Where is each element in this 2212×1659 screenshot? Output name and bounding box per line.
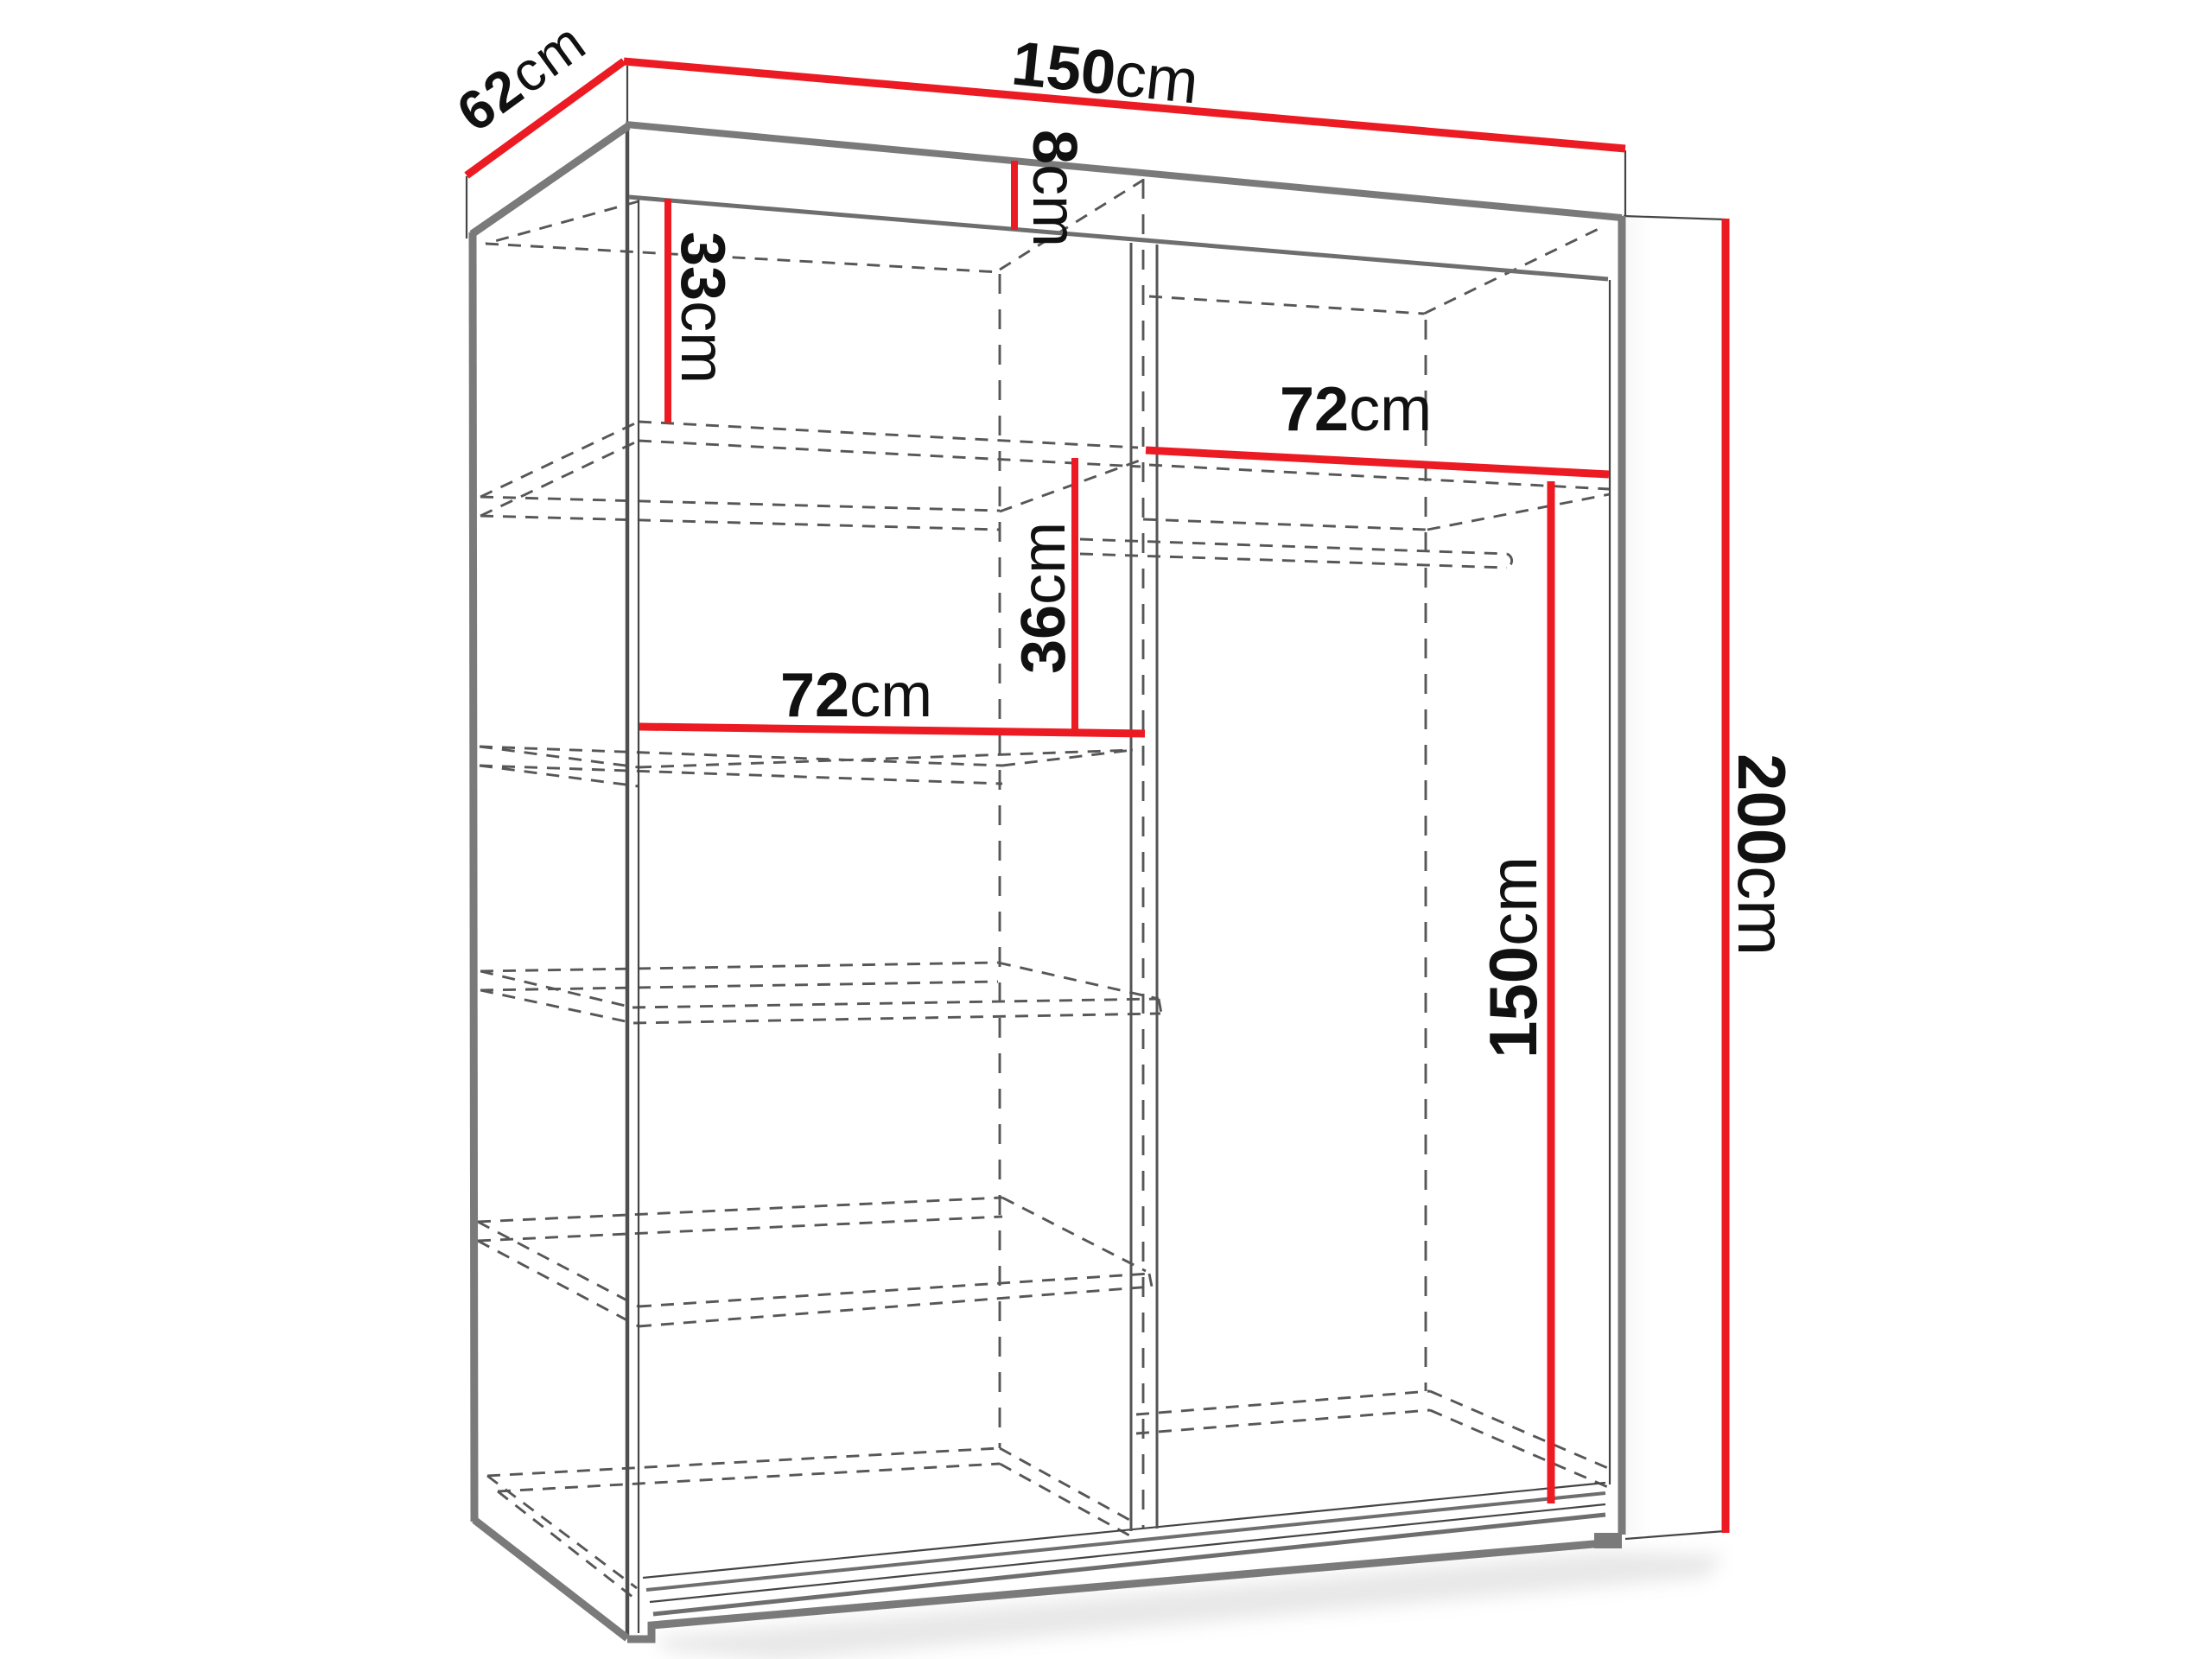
- svg-text:72cm: 72cm: [780, 661, 932, 730]
- svg-text:200cm: 200cm: [1724, 753, 1800, 956]
- svg-text:72cm: 72cm: [1280, 375, 1432, 444]
- svg-text:8cm: 8cm: [1020, 130, 1089, 247]
- svg-text:150cm: 150cm: [1475, 856, 1551, 1058]
- svg-text:36cm: 36cm: [1009, 522, 1078, 674]
- svg-text:33cm: 33cm: [668, 232, 737, 384]
